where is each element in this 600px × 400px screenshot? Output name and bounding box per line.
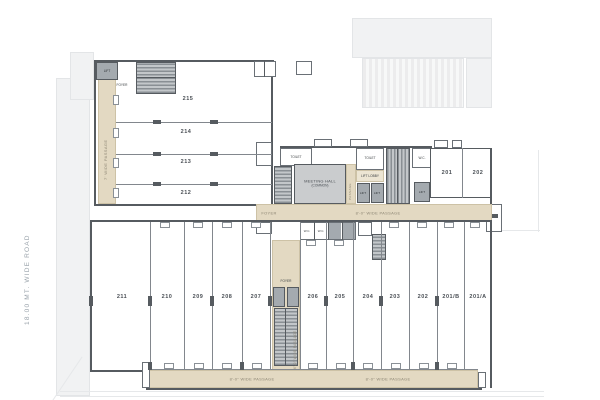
duct-box <box>478 372 486 388</box>
column <box>435 296 439 306</box>
meeting-hall-label: MEETING HALL (COMMON) <box>304 179 336 188</box>
column <box>153 120 161 124</box>
wall <box>94 60 96 206</box>
foyer-upper-label: FOYER <box>117 83 128 87</box>
wall <box>184 222 185 370</box>
wall <box>462 148 463 198</box>
unit-201-label: 201 <box>442 170 453 176</box>
foyer-mid-label: FOYER <box>261 211 276 216</box>
door <box>419 363 429 369</box>
context-building-hatched <box>362 58 464 108</box>
column <box>435 362 439 370</box>
duct-box <box>254 61 276 77</box>
road-label: 18.00 MT. WIDE ROAD <box>24 195 31 325</box>
duct-divider <box>264 61 265 77</box>
unit-212-label: 212 <box>181 190 192 196</box>
context-line <box>60 391 544 392</box>
column <box>492 214 498 218</box>
unit-209-label: 209 <box>193 294 204 300</box>
lift-lobby-label: LIFT LOBBY <box>361 174 379 178</box>
door <box>417 222 427 228</box>
stair-rail <box>397 148 398 204</box>
duct-box <box>358 222 372 236</box>
unit-201a-label: 201/A <box>469 294 486 300</box>
door <box>306 240 316 246</box>
unit-202b-label: 202 <box>418 294 429 300</box>
door <box>113 95 119 105</box>
wc-label: W.C. <box>318 229 325 233</box>
door <box>252 363 262 369</box>
floor-plan: 18.00 MT. WIDE ROAD 7' WIDE PASSAGE LIFT… <box>0 0 600 400</box>
toilet-label: TOILET <box>364 156 375 160</box>
door <box>251 222 261 228</box>
wall <box>242 222 243 370</box>
column <box>210 152 218 156</box>
column <box>379 296 383 306</box>
unit-211-label: 211 <box>117 294 127 300</box>
unit-208-label: 208 <box>222 294 233 300</box>
door <box>164 363 174 369</box>
wall <box>353 222 354 370</box>
passage-central-label: 6'-0" WIDE PASSAGE <box>293 314 297 369</box>
column <box>89 296 93 306</box>
context-line <box>60 396 544 397</box>
wc-cell <box>329 223 341 239</box>
toilet-label: TOILET <box>290 155 301 159</box>
unit-201b-label: 201/B <box>442 294 459 300</box>
door <box>389 222 399 228</box>
duct-box <box>350 139 368 147</box>
column <box>351 362 355 370</box>
lift-label: LIFT <box>374 191 380 195</box>
passage-left-label: 7' WIDE PASSAGE <box>103 110 108 180</box>
duct-box <box>434 140 448 148</box>
unit-210-label: 210 <box>162 294 173 300</box>
column <box>148 296 152 306</box>
context-building <box>352 18 492 58</box>
stair-rail <box>285 308 286 366</box>
wall <box>490 222 492 388</box>
unit-213-label: 213 <box>181 159 192 165</box>
door <box>222 363 232 369</box>
door <box>222 222 232 228</box>
duct-box <box>452 140 462 148</box>
context-block <box>466 58 492 108</box>
context-block <box>70 52 94 100</box>
unit-206-label: 206 <box>308 294 319 300</box>
staircase <box>136 62 176 94</box>
column <box>240 362 244 370</box>
wall <box>314 222 315 240</box>
wall <box>409 222 410 370</box>
door <box>447 363 457 369</box>
door <box>363 363 373 369</box>
column <box>153 152 161 156</box>
lift <box>273 287 285 307</box>
staircase <box>386 148 410 204</box>
passage-mid-label: 8'-0" WIDE PASSAGE <box>356 211 401 216</box>
column <box>210 120 218 124</box>
wc-label: W.C. <box>419 156 426 160</box>
column <box>210 296 214 306</box>
wall <box>116 154 272 155</box>
unit-203-label: 203 <box>390 294 401 300</box>
wall <box>116 184 272 185</box>
duct-box <box>314 139 332 147</box>
door <box>470 222 480 228</box>
door <box>113 128 119 138</box>
door <box>113 188 119 198</box>
wc-label: W.C. <box>304 229 311 233</box>
door <box>334 240 344 246</box>
stair-rail <box>136 77 176 78</box>
column <box>210 182 218 186</box>
unit-215-label: 215 <box>183 96 194 102</box>
lift-label: LIFT <box>104 69 111 73</box>
column <box>148 362 152 370</box>
unit-205-label: 205 <box>335 294 346 300</box>
meeting-hall-line2: (COMMON) <box>304 184 336 188</box>
lift <box>287 287 299 307</box>
wall <box>94 60 274 62</box>
door <box>193 222 203 228</box>
unit-202-label: 202 <box>473 170 484 176</box>
unit-207-label: 207 <box>251 294 262 300</box>
wall <box>116 122 272 123</box>
wall <box>300 222 301 370</box>
passage-bottom-right-label: 8'-0" WIDE PASSAGE <box>366 377 411 382</box>
lift-label: LIFT <box>360 191 366 195</box>
foyer-lower-label: FOYER <box>281 279 292 283</box>
passage-bottom <box>148 370 478 388</box>
door <box>308 363 318 369</box>
road-band <box>56 78 90 396</box>
passage-bottom-left-label: 8'-0" WIDE PASSAGE <box>230 377 275 382</box>
door <box>160 222 170 228</box>
door <box>113 158 119 168</box>
unit-214-label: 214 <box>181 129 192 135</box>
wall <box>94 204 273 206</box>
door <box>391 363 401 369</box>
duct-hatched <box>372 234 386 260</box>
door <box>444 222 454 228</box>
unit-204-label: 204 <box>363 294 374 300</box>
door <box>194 363 204 369</box>
wall <box>464 222 465 370</box>
lift-label: LIFT <box>419 190 425 194</box>
duct-box <box>296 61 312 75</box>
wall <box>146 388 482 390</box>
column <box>324 296 328 306</box>
context-line <box>538 150 539 232</box>
column <box>153 182 161 186</box>
door <box>336 363 346 369</box>
core-passage-label: PASSAGE <box>348 170 352 200</box>
wall <box>90 370 150 372</box>
staircase <box>274 166 292 204</box>
